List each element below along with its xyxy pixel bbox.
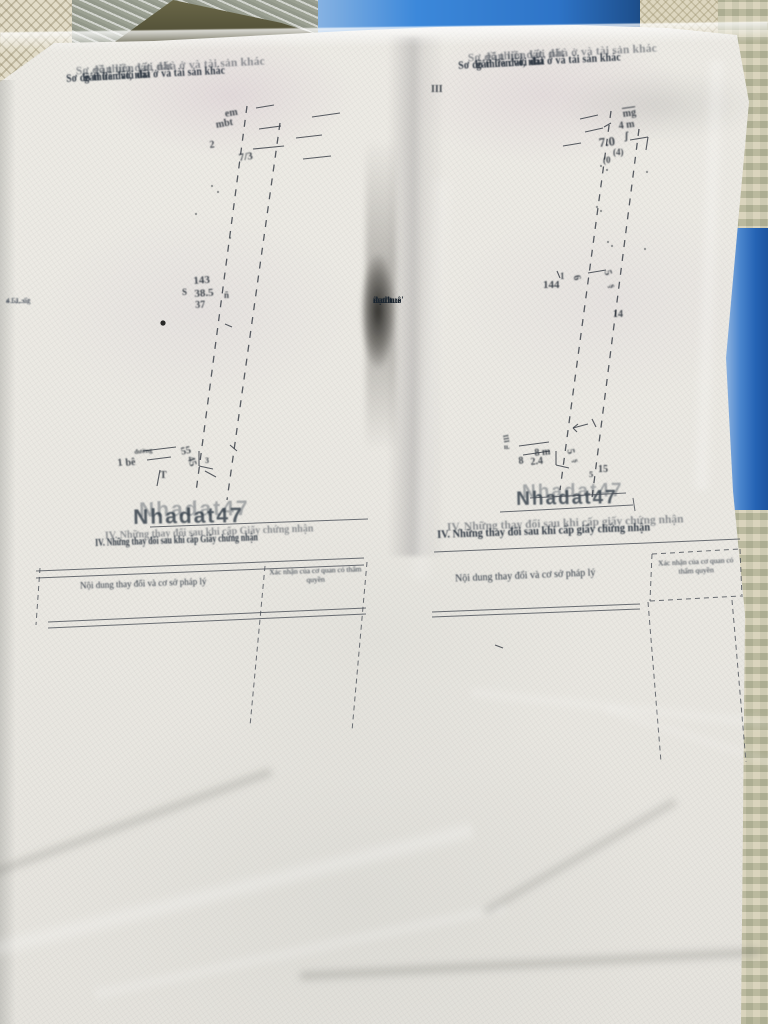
photo-vignette	[0, 0, 768, 1024]
photo-of-land-certificate: Sơ đồ thửa đất, nhà ở và tài sản khácSơ …	[0, 0, 768, 1024]
